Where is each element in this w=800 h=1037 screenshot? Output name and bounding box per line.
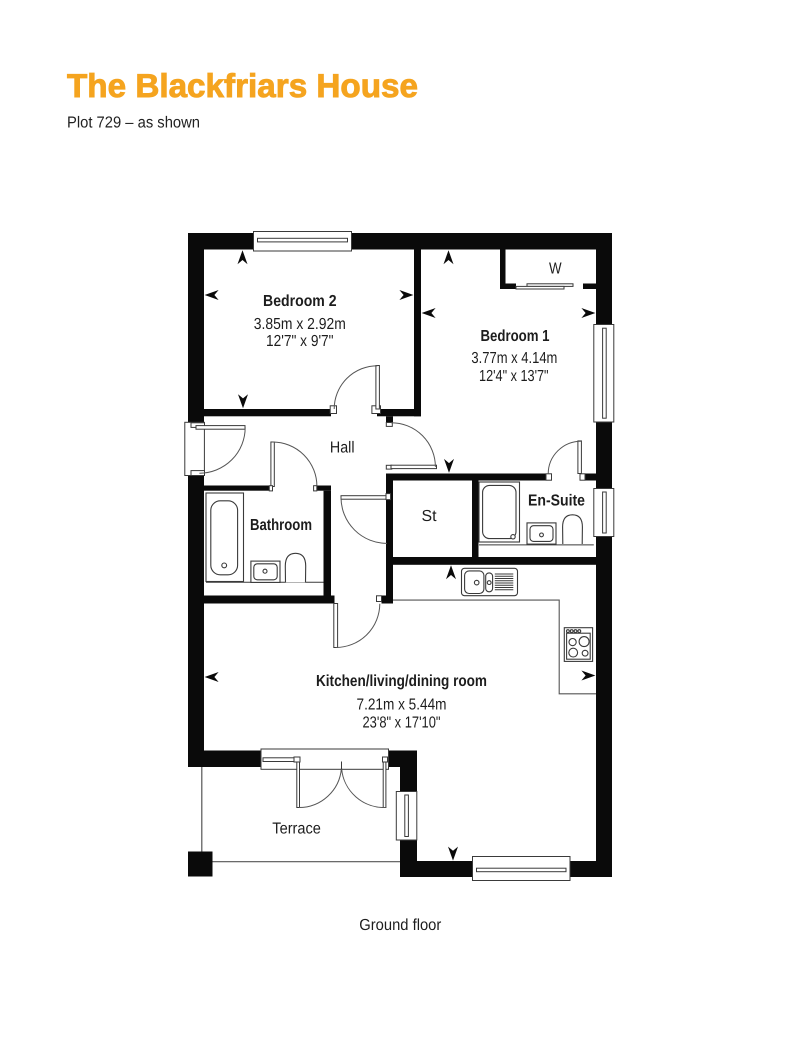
svg-text:Plot 729 – as shown: Plot 729 – as shown xyxy=(67,115,200,132)
svg-text:The Blackfriars House: The Blackfriars House xyxy=(67,67,418,104)
svg-text:En-Suite: En-Suite xyxy=(528,492,585,509)
svg-text:Hall: Hall xyxy=(330,439,355,456)
svg-text:12'7" x 9'7": 12'7" x 9'7" xyxy=(266,333,334,350)
svg-text:23'8" x 17'10": 23'8" x 17'10" xyxy=(363,715,441,732)
svg-text:12'4" x 13'7": 12'4" x 13'7" xyxy=(479,368,549,385)
svg-text:Bedroom 1: Bedroom 1 xyxy=(481,328,550,345)
svg-text:Bedroom 2: Bedroom 2 xyxy=(263,293,337,310)
svg-text:Bathroom: Bathroom xyxy=(250,517,312,534)
svg-text:3.77m x 4.14m: 3.77m x 4.14m xyxy=(471,350,557,367)
svg-text:W: W xyxy=(549,260,562,277)
svg-text:7.21m x 5.44m: 7.21m x 5.44m xyxy=(357,697,447,714)
svg-text:Terrace: Terrace xyxy=(272,821,321,838)
svg-text:St: St xyxy=(422,508,438,525)
svg-text:3.85m x 2.92m: 3.85m x 2.92m xyxy=(254,316,346,333)
svg-text:Kitchen/living/dining room: Kitchen/living/dining room xyxy=(316,673,487,690)
svg-text:Ground floor: Ground floor xyxy=(359,917,442,934)
